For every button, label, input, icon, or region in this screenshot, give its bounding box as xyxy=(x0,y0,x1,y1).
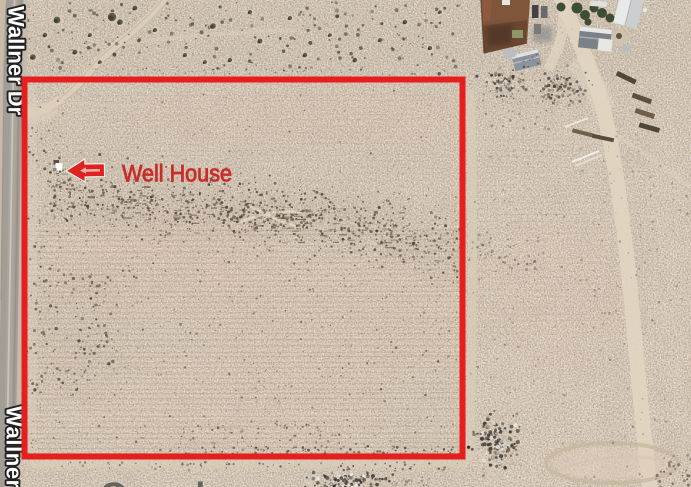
svg-text:Well House: Well House xyxy=(122,161,232,188)
svg-text:Google: Google xyxy=(100,476,227,487)
